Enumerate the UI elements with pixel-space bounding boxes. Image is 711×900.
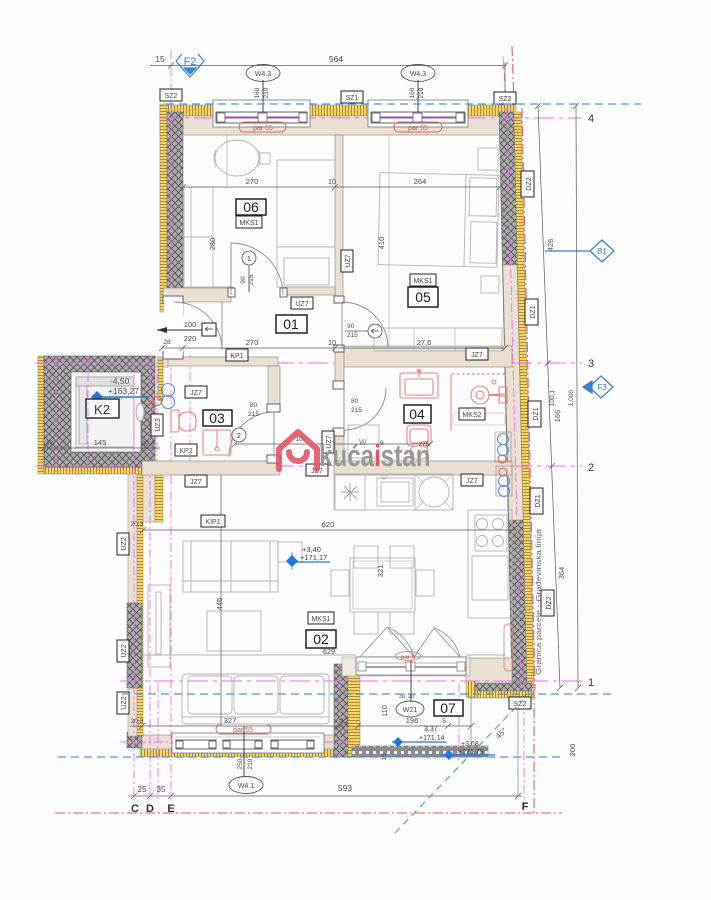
svg-text:629: 629 (323, 649, 335, 656)
svg-text:F: F (522, 801, 529, 813)
svg-text:kućaistan: kućaistan (319, 438, 430, 473)
svg-text:3: 3 (588, 358, 594, 370)
svg-text:410: 410 (377, 237, 386, 250)
svg-text:80: 80 (250, 402, 258, 409)
svg-text:Granica parcele - Građevinska: Granica parcele - Građevinska linija (534, 528, 543, 675)
svg-text:W4.3: W4.3 (410, 71, 426, 78)
svg-text:JZ7: JZ7 (190, 479, 202, 486)
svg-text:100: 100 (184, 320, 197, 329)
svg-text:+3,68: +3,68 (461, 741, 479, 748)
svg-text:90: 90 (347, 323, 355, 330)
svg-text:215: 215 (351, 407, 362, 414)
svg-text:MKS1: MKS1 (239, 220, 258, 227)
svg-text:4: 4 (588, 113, 594, 125)
svg-text:28: 28 (163, 339, 171, 346)
svg-text:par 55: par 55 (408, 125, 428, 132)
svg-text:MKS1: MKS1 (311, 616, 330, 623)
svg-text:264: 264 (414, 177, 427, 186)
svg-text:446: 446 (215, 598, 224, 611)
svg-text:SZ1: SZ1 (346, 95, 359, 102)
svg-text:270: 270 (246, 177, 259, 186)
svg-text:SZ2: SZ2 (514, 701, 527, 708)
svg-text:01: 01 (283, 316, 299, 332)
svg-text:210: 210 (418, 87, 425, 98)
svg-text:UZ2: UZ2 (121, 696, 128, 709)
svg-text:JZ7: JZ7 (190, 390, 202, 397)
svg-text:210: 210 (263, 87, 270, 98)
svg-text:321: 321 (376, 565, 385, 578)
svg-text:UZ3: UZ3 (155, 418, 162, 431)
svg-text:K2: K2 (94, 402, 110, 417)
svg-text:+171,14: +171,14 (419, 735, 445, 742)
svg-text:364: 364 (557, 567, 566, 580)
svg-text:1: 1 (247, 256, 251, 263)
svg-text:2: 2 (237, 433, 241, 440)
svg-text:UZ7: UZ7 (345, 254, 352, 267)
svg-text:20,3: 20,3 (131, 718, 144, 725)
svg-text:02: 02 (313, 631, 329, 647)
svg-text:90: 90 (240, 276, 247, 284)
svg-text:20: 20 (408, 694, 414, 700)
svg-text:+171,17: +171,17 (300, 553, 327, 562)
svg-text:07: 07 (440, 700, 456, 716)
svg-text:UZ2: UZ2 (121, 644, 128, 657)
svg-text:215: 215 (248, 411, 259, 418)
svg-text:C: C (131, 803, 139, 815)
svg-text:25: 25 (138, 785, 147, 794)
svg-text:1: 1 (588, 677, 594, 689)
svg-text:F3: F3 (597, 383, 607, 392)
svg-text:DZ1: DZ1 (530, 305, 537, 318)
svg-text:03: 03 (209, 410, 225, 426)
svg-text:426: 426 (546, 239, 555, 252)
svg-text:1,000: 1,000 (568, 389, 576, 406)
svg-text:KP2: KP2 (179, 448, 192, 455)
svg-text:620: 620 (322, 520, 335, 529)
svg-text:27,6: 27,6 (417, 338, 432, 347)
svg-text:10: 10 (328, 338, 336, 347)
svg-text:SZ2: SZ2 (499, 96, 512, 103)
svg-text:200: 200 (568, 744, 577, 757)
svg-text:D: D (146, 803, 154, 815)
svg-text:270: 270 (246, 338, 259, 347)
svg-text:10: 10 (328, 177, 336, 186)
svg-text:W4.1: W4.1 (238, 783, 254, 790)
svg-text:2: 2 (588, 462, 594, 474)
svg-text:593: 593 (338, 783, 352, 793)
svg-text:280: 280 (208, 238, 217, 251)
svg-text:20,3: 20,3 (131, 521, 144, 528)
svg-text:DZ1: DZ1 (533, 407, 540, 420)
svg-text:160: 160 (409, 87, 416, 98)
svg-text:20: 20 (46, 440, 54, 447)
svg-text:KIP1: KIP1 (205, 519, 220, 526)
svg-text:B1: B1 (597, 247, 607, 256)
svg-text:160: 160 (254, 87, 261, 98)
svg-text:-4,50: -4,50 (110, 376, 130, 386)
svg-text:3,37: 3,37 (424, 726, 438, 733)
svg-text:20,4: 20,4 (142, 440, 155, 447)
svg-text:210: 210 (247, 758, 254, 769)
svg-text:JZ7: JZ7 (471, 352, 483, 359)
svg-text:100,1: 100,1 (549, 389, 557, 406)
svg-text:06: 06 (243, 199, 259, 215)
svg-text:5: 5 (442, 718, 446, 725)
svg-text:166: 166 (553, 410, 562, 423)
svg-text:564: 564 (329, 54, 343, 64)
svg-text:327: 327 (224, 716, 237, 725)
svg-text:UZ7: UZ7 (295, 301, 308, 308)
svg-text:220: 220 (184, 334, 197, 343)
svg-text:DZ2: DZ2 (526, 177, 533, 190)
svg-text:250: 250 (237, 758, 244, 769)
svg-text:DZ1: DZ1 (535, 494, 542, 507)
svg-text:110: 110 (380, 705, 389, 717)
svg-text:3,2: 3,2 (339, 718, 348, 725)
svg-text:JZ7: JZ7 (466, 478, 478, 485)
svg-text:F2: F2 (184, 56, 197, 68)
svg-text:MKS2: MKS2 (462, 412, 481, 419)
svg-text:MKS1: MKS1 (413, 278, 432, 285)
svg-text:KP1: KP1 (230, 353, 243, 360)
svg-text:par 55: par 55 (253, 125, 273, 132)
svg-text:145: 145 (94, 438, 107, 447)
svg-text:UZ2: UZ2 (121, 537, 128, 550)
svg-text:215: 215 (347, 332, 358, 339)
svg-text:05: 05 (415, 289, 431, 305)
svg-text:80: 80 (351, 398, 359, 405)
svg-text:DZ2: DZ2 (546, 596, 553, 609)
svg-text:W4.3: W4.3 (255, 71, 271, 78)
svg-text:35: 35 (157, 785, 166, 794)
svg-text:30: 30 (399, 694, 405, 700)
svg-text:15: 15 (155, 54, 165, 64)
svg-text:SZ2: SZ2 (165, 93, 178, 100)
svg-text:par 55: par 55 (233, 727, 253, 734)
svg-text:04: 04 (409, 406, 425, 422)
svg-text:W21: W21 (403, 707, 418, 714)
svg-text:+163,27: +163,27 (108, 386, 139, 396)
svg-text:E: E (167, 803, 174, 815)
